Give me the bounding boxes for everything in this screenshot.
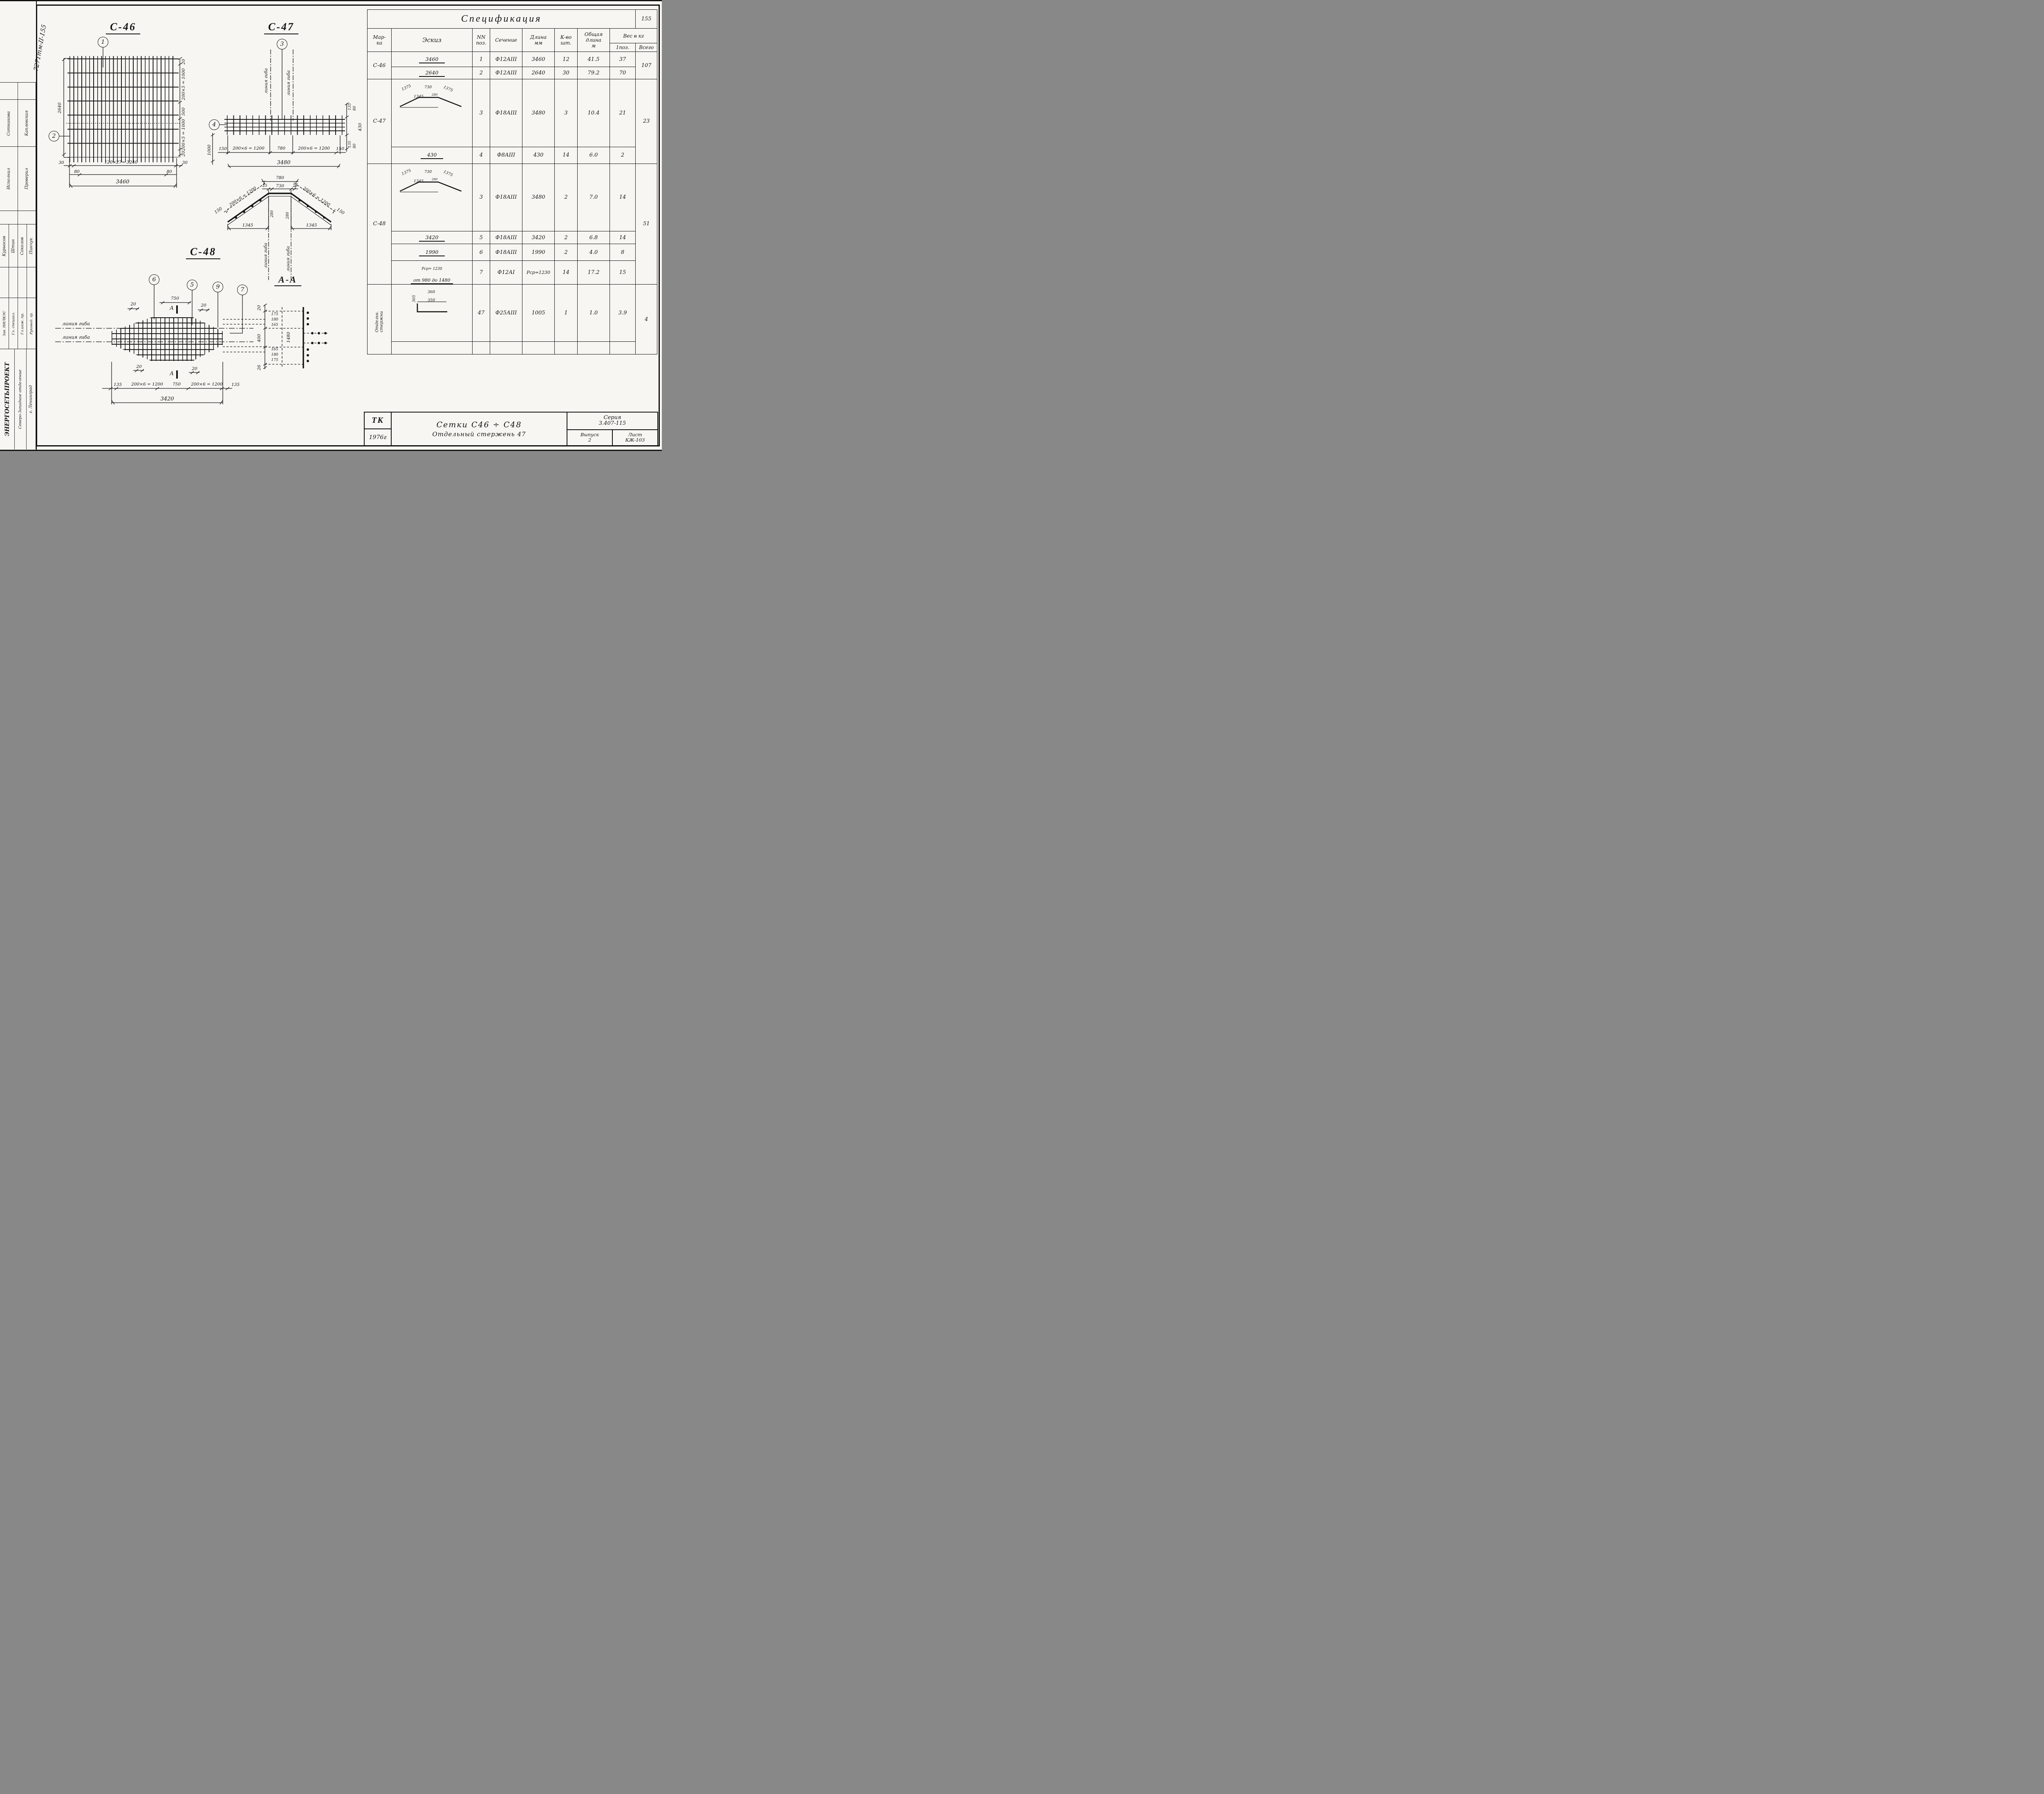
c47-dim: 150 (219, 146, 227, 151)
cell-weight-total: 4 (636, 285, 657, 354)
cell-qty: 30 (555, 67, 578, 79)
cell-section: Ф12АIII (490, 67, 522, 79)
aa-dim: 20 (257, 305, 262, 310)
cell-qty: 2 (555, 164, 578, 231)
c47-dim-total: 3480 (277, 160, 290, 166)
col-header-qty: К-во шт. (555, 29, 578, 52)
cell-section: Ф18АIII (490, 164, 522, 231)
cell-qty: 12 (555, 52, 578, 67)
c47-dim: 80 (353, 144, 357, 148)
c47-callout-3: 3 (277, 39, 287, 49)
c46-dimension-lines (59, 47, 183, 188)
c48-callout-6: 6 (149, 274, 159, 285)
c47-dim: 80 (353, 106, 357, 110)
c47-dim: 200×6 = 1200 (298, 146, 330, 151)
col-header-length: Длина мм (522, 29, 555, 52)
cell-qty: 2 (555, 244, 578, 261)
mark-c46: С-46 (368, 52, 392, 79)
c48-dim: 135 (231, 382, 240, 387)
sketch-line: 3460 (419, 56, 445, 63)
c47-title: С-47 (264, 21, 298, 34)
c47-dim: 135 (348, 103, 352, 110)
cell-pos: 6 (473, 244, 490, 261)
cell-qty: 2 (555, 231, 578, 244)
cell-weight: 15 (610, 261, 636, 285)
drawing-sheet: 7271тм-II-155 Сотникова Каплевская Испол… (0, 0, 662, 451)
cell-total-length: 6.8 (578, 231, 610, 244)
c47-detail-dim: 1345 (242, 223, 253, 228)
table-row: 3420 5 Ф18АIII 3420 2 6.8 14 (368, 231, 657, 244)
cell-weight-total: 51 (636, 164, 657, 285)
aa-dim: 165 (271, 348, 278, 352)
c46-dim: 80 (74, 169, 79, 174)
c46-dim-height: 2640 (57, 103, 62, 114)
cell-weight-total: 107 (636, 52, 657, 79)
cell-section: Ф12АIII (490, 52, 522, 67)
c47-detail-dim: 1345 (306, 223, 317, 228)
cell-weight: 14 (610, 231, 636, 244)
cell-pos: 47 (473, 285, 490, 342)
c48-dim: 750 (173, 382, 181, 387)
aa-title: А-А (274, 274, 301, 286)
aa-dim: 175 (271, 358, 278, 362)
aa-dim: 175 (271, 312, 278, 316)
c48-dim: 200×6 = 1200 (191, 382, 223, 387)
c48-dim: 20 (192, 366, 197, 371)
sketch-line: 1990 (419, 249, 445, 256)
sheet-number-cell: Лист КЖ-103 (613, 430, 657, 445)
c48-dim: 20 (201, 303, 206, 308)
col-header-sketch: Эскиз (392, 29, 473, 52)
sheet-title-line1: Сетки С46 ÷ С48 (437, 420, 522, 429)
table-row: С-47 1375 730 1375 1345 280 3 Ф18АIII 34… (368, 79, 657, 147)
c46-dim: 80 (166, 169, 172, 174)
c48-dim: 135 (114, 382, 122, 387)
cell-section: Ф18АIII (490, 79, 522, 147)
c47-detail-dim: 780 (276, 175, 284, 180)
cell-section: Ф18АIII (490, 244, 522, 261)
c47-dim: 430 (358, 123, 363, 131)
c46-dim: 20 (181, 151, 186, 156)
col-header-section: Сечение (490, 29, 522, 52)
cell-length: 430 (522, 147, 555, 164)
cell-total-length: 10.4 (578, 79, 610, 147)
c46-dim: 20 (181, 59, 186, 64)
c48-dim: 20 (136, 364, 141, 369)
sketch-line: 3420 (419, 234, 445, 242)
c48-callout-5: 5 (187, 280, 197, 290)
cell-qty: 14 (555, 147, 578, 164)
c48-dim-total: 3420 (160, 397, 174, 403)
cell-total-length: 7.0 (578, 164, 610, 231)
c46-dim: 500 (181, 108, 186, 116)
sketch-trapezoid: 1375 730 1375 1345 280 (392, 85, 471, 141)
cell-total-length: 4.0 (578, 244, 610, 261)
aa-dim: 400 (257, 334, 262, 342)
c47-callout-4: 4 (209, 119, 220, 130)
c47-bend-label: линия гиба (264, 68, 269, 94)
mark-c48: С-48 (368, 164, 392, 285)
aa-dim: 26 (257, 365, 262, 370)
cell-pos: 1 (473, 52, 490, 67)
aa-dim: 180 (271, 318, 278, 322)
cell-total-length: 1.0 (578, 285, 610, 342)
c48-dim: 750 (171, 296, 179, 301)
c48-dim: 200×6 = 1200 (131, 382, 163, 387)
cell-pos: 5 (473, 231, 490, 244)
c47-detail-dim: 25 (293, 184, 297, 188)
cell-weight: 3.9 (610, 285, 636, 342)
cell-total-length: 79.2 (578, 67, 610, 79)
c48-callout-9: 9 (213, 282, 223, 292)
c48-callout-7: 7 (237, 285, 248, 295)
cell-pos: 2 (473, 67, 490, 79)
cell-length: Рср=1230 (522, 261, 555, 285)
cell-pos: 7 (473, 261, 490, 285)
cell-weight: 2 (610, 147, 636, 164)
col-header-weight: Вес в кг (610, 29, 657, 43)
c47-detail-dim: 280 (270, 210, 274, 217)
c47-bend-label: линия гиба (286, 246, 291, 271)
c46-callout-2: 2 (49, 131, 59, 141)
c47-detail-dim: 25 (262, 184, 267, 188)
table-row: С-46 3460 1 Ф12АIII 3460 12 41.5 37 107 (368, 52, 657, 67)
cell-total-length: 41.5 (578, 52, 610, 67)
cell-section: Ф8АIII (490, 147, 522, 164)
col-header-nn: NN поз. (473, 29, 490, 52)
cell-weight: 8 (610, 244, 636, 261)
cell-length: 3480 (522, 164, 555, 231)
c46-title: С-46 (106, 21, 140, 34)
col-header-weight-pos: 1поз. (610, 43, 636, 52)
c46-callout-1: 1 (98, 37, 108, 47)
sheet-title-line2: Отдельный стержень 47 (432, 431, 526, 438)
cell-length: 2640 (522, 67, 555, 79)
cell-total-length: 6.0 (578, 147, 610, 164)
c48-dim: 20 (130, 302, 136, 307)
table-row: 1990 6 Ф18АIII 1990 2 4.0 8 (368, 244, 657, 261)
cell-length: 3480 (522, 79, 555, 147)
cell-length: 1990 (522, 244, 555, 261)
c48-bend-label: линия гиба (62, 334, 90, 340)
c47-bend-label: линия гиба (286, 70, 291, 96)
c48-section-mark: А (170, 306, 174, 312)
cell-qty: 1 (555, 285, 578, 342)
aa-dim: 165 (271, 323, 278, 327)
c47-dim: 1000 (207, 145, 212, 156)
c47-dim: 150 (336, 146, 344, 151)
sketch-line: 2640 (419, 69, 445, 77)
sketch-trapezoid: 1375 730 1375 1345 280 (392, 170, 471, 225)
c47-dim: 200×6 = 1200 (233, 146, 264, 151)
table-row: 430 4 Ф8АIII 430 14 6.0 2 (368, 147, 657, 164)
aa-dim: 180 (271, 353, 278, 357)
table-row: С-48 1375 730 1375 1345 280 3 Ф18АIII 34… (368, 164, 657, 231)
c46-dim: 30 (58, 160, 64, 165)
cell-pos: 4 (473, 147, 490, 164)
aa-dim-inner: 1480 (286, 332, 291, 343)
cell-qty: 14 (555, 261, 578, 285)
cell-weight: 37 (610, 52, 636, 67)
c47-bend-label: линия гиба (263, 243, 268, 268)
cell-pos: 3 (473, 79, 490, 147)
table-row: 2640 2 Ф12АIII 2640 30 79.2 70 (368, 67, 657, 79)
cell-pos: 3 (473, 164, 490, 231)
c46-dim: 30 (182, 160, 187, 165)
c47-bend-detail (224, 179, 336, 280)
cell-section: Ф18АIII (490, 231, 522, 244)
c47-detail-dim: 730 (276, 184, 284, 188)
table-row-empty (368, 341, 657, 354)
cell-weight: 70 (610, 67, 636, 79)
c48-section-mark: А (170, 371, 174, 377)
mark-c47: С-47 (368, 79, 392, 164)
c47-dim: 135 (348, 141, 352, 148)
cell-section: Ф25АIII (490, 285, 522, 342)
sketch-bent-bar: 360 305 350 (392, 291, 471, 335)
c48-bend-label: линия гиба (62, 321, 90, 326)
sketch-line: 430 (421, 151, 444, 159)
spec-table: Спецификация 155 Мар- ка Эскиз NN поз. С… (367, 9, 657, 354)
c46-dim: 200×5 = 1000 (181, 68, 186, 100)
mark-separate-bars: Отдельн. стержни (368, 285, 392, 354)
cell-length: 3460 (522, 52, 555, 67)
col-header-total-length: Общая длина м (578, 29, 610, 52)
cell-total-length: 17.2 (578, 261, 610, 285)
spec-title: Спецификация (368, 10, 636, 29)
table-row: Отдельн. стержни 360 305 350 47 Ф25АIII … (368, 285, 657, 342)
sketch-range: Рср= 1230 от 980 до 1480 (392, 261, 473, 285)
c48-title: С-48 (186, 246, 220, 259)
series-cell: Серия 3.407-115 (567, 413, 657, 430)
cell-weight: 21 (610, 79, 636, 147)
cell-length: 1005 (522, 285, 555, 342)
cell-weight-total: 23 (636, 79, 657, 164)
title-block: ТК 1976г Сетки С46 ÷ С48 Отдельный стерж… (364, 412, 658, 446)
col-header-mark: Мар- ка (368, 29, 392, 52)
c47-dim: 780 (277, 146, 285, 151)
c46-dim-total: 3460 (116, 179, 129, 186)
table-row: Рср= 1230 от 980 до 1480 7 Ф12АI Рср=123… (368, 261, 657, 285)
title-block-year: 1976г (365, 429, 391, 445)
c47-detail-dim: 280 (286, 212, 290, 219)
c46-dim: 120×27= 3240 (104, 160, 137, 165)
title-block-code: ТК (365, 413, 391, 429)
c46-dim: 200×5 = 1000 (181, 119, 186, 151)
page-number: 155 (636, 10, 657, 29)
cell-length: 3420 (522, 231, 555, 244)
issue-cell: Выпуск 2 (567, 430, 613, 445)
cell-weight: 14 (610, 164, 636, 231)
col-header-weight-total: Всего (636, 43, 657, 52)
cell-qty: 3 (555, 79, 578, 147)
cell-section: Ф12АI (490, 261, 522, 285)
